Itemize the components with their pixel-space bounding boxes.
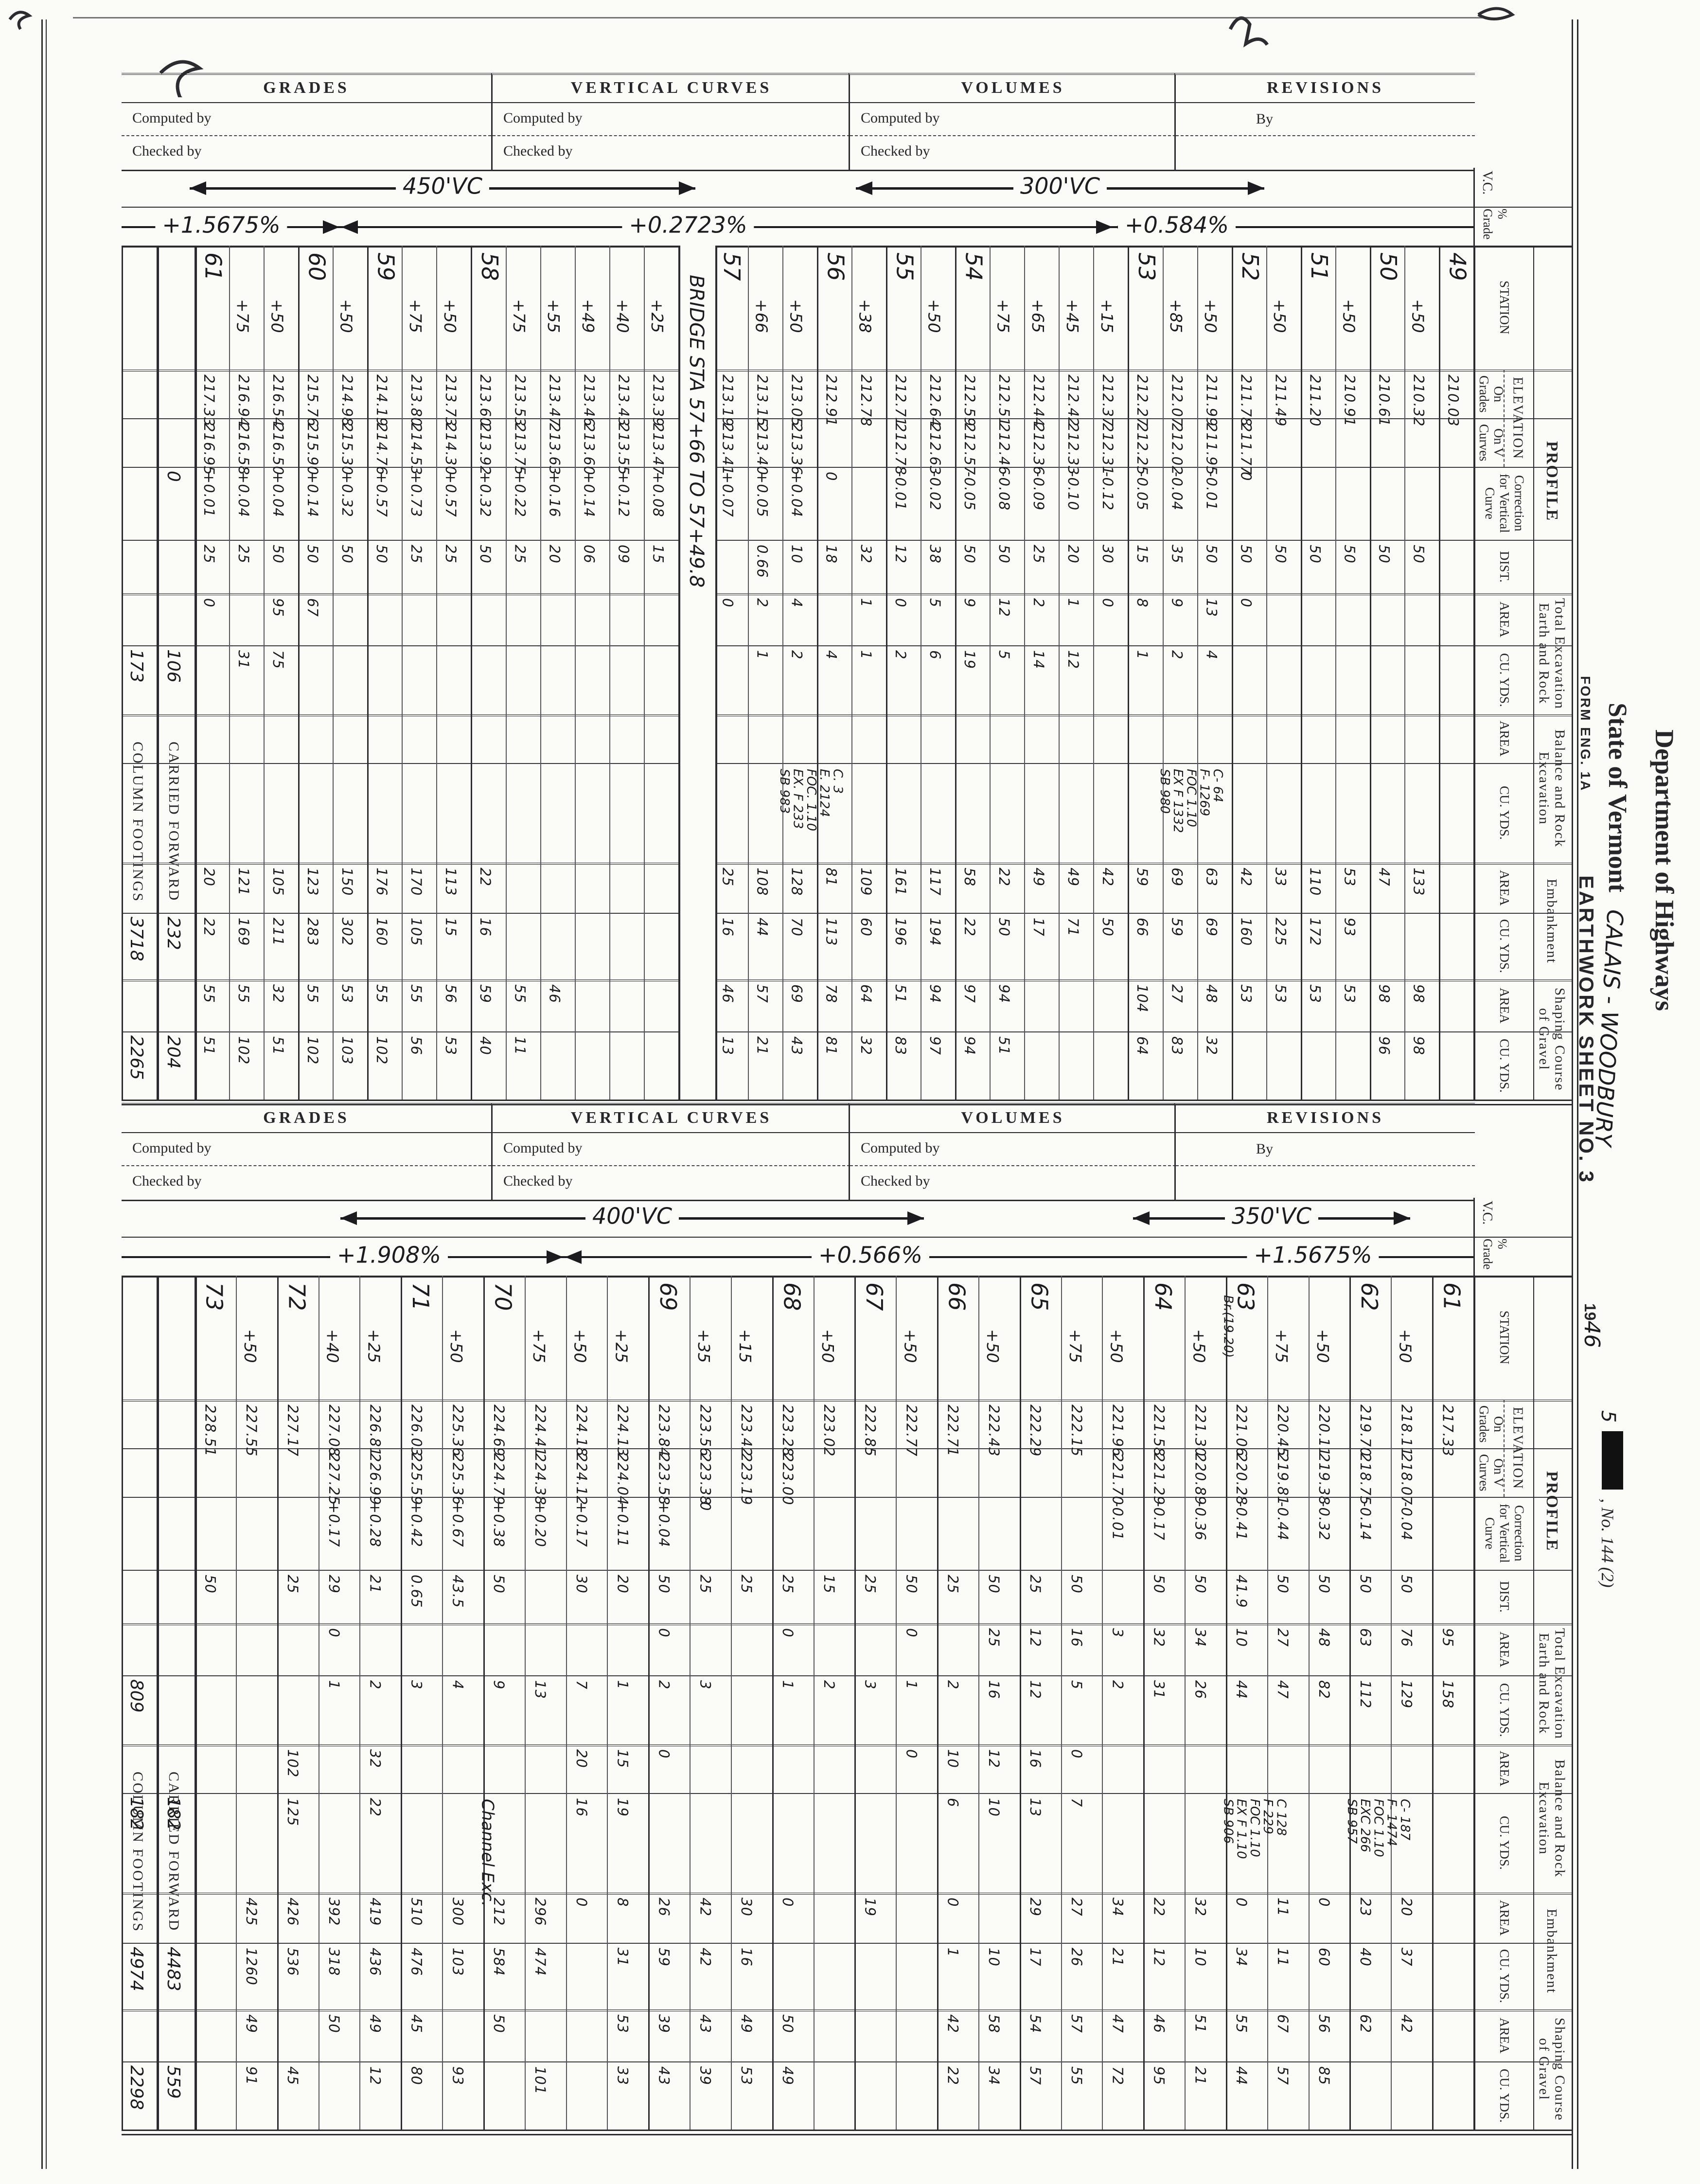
section-mid-rule (1176, 1165, 1475, 1166)
cell-top-sh_cy-17: 81 (823, 1036, 840, 1055)
cell-bottom-bal_cy-10: 19 (615, 1798, 631, 1817)
cell-bottom-te_area-11: 0 (655, 1628, 672, 1637)
cell-top-te_cy-16: 2 (789, 650, 805, 659)
section-title: GRADES (122, 1109, 491, 1127)
section-title-rule (1176, 102, 1475, 103)
cell-bottom-sh_cy-1: 91 (243, 2066, 260, 2085)
section-title: GRADES (122, 79, 491, 97)
cell-bottom-corr-5: +0.42 (408, 1502, 425, 1547)
cell-top-corr-24: -0.10 (1065, 472, 1081, 511)
total-carried-emb_cy-top: 232 (163, 917, 183, 950)
cell-bottom-te_area-28: 63 (1357, 1628, 1374, 1647)
cell-bottom-emb_cy-24: 10 (1192, 1948, 1208, 1967)
sheet-year: 1946 (1579, 1303, 1604, 1348)
note-bottom-3: C- 187F- 1474FOC 1.10EXC 266SB 957 (1345, 1799, 1411, 1857)
cell-top-station-26: 53 (1133, 252, 1160, 281)
col-line-bottom-9 (566, 1276, 567, 2130)
cell-bottom-te_cy-3: 1 (326, 1680, 342, 1689)
cell-top-emb_cy-26: 66 (1134, 918, 1151, 937)
cell-bottom-corr-6: +0.67 (449, 1502, 466, 1547)
cell-bottom-bal_area-10: 15 (615, 1749, 631, 1768)
grade-meet-left-0 (341, 220, 358, 234)
cell-bottom-te_cy-19: 16 (986, 1680, 1002, 1699)
cell-top-on_grades-31: 211.20 (1307, 374, 1324, 417)
cell-top-sh_cy-27: 83 (1169, 1036, 1185, 1055)
grade-label-2: +0.584% (1118, 212, 1236, 238)
cell-bottom-te_cy-9: 7 (573, 1680, 590, 1689)
bottom-vc-arrow-1-head-left (1133, 1211, 1150, 1225)
total-footings-bal_cy-bottom: 182 (126, 1797, 146, 1830)
cell-bottom-emb_area-13: 30 (738, 1898, 755, 1917)
cell-top-te_area-24: 1 (1065, 598, 1081, 607)
cell-top-dist-19: 12 (892, 545, 909, 564)
cell-bottom-te_cy-22: 2 (1110, 1680, 1126, 1689)
cell-top-emb_area-21: 58 (961, 868, 978, 887)
cell-top-emb_cy-15: 44 (754, 918, 771, 937)
grade-row-divider (1473, 207, 1475, 246)
cell-top-sh_cy-5: 102 (373, 1036, 390, 1065)
cell-top-corr-28: -0.01 (1203, 472, 1220, 511)
cell-top-te_area-27: 9 (1169, 598, 1185, 607)
computed-by-label: Computed by (861, 1140, 940, 1156)
cell-top-on_grades-9: 213.53 (512, 374, 528, 417)
cell-top-corr-15: +0.05 (754, 472, 771, 517)
cell-bottom-on_grades-9: 224.18 (573, 1404, 590, 1447)
computed-by-label: Computed by (132, 1140, 212, 1156)
cell-bottom-station-7: 70 (490, 1282, 516, 1311)
cell-bottom-corr-26: -0.44 (1275, 1502, 1291, 1541)
col-line-bottom-23 (1143, 1276, 1145, 2130)
total-footings-sh_cy-top: 2265 (126, 1035, 146, 1080)
cell-top-sh_area-3: 55 (304, 984, 321, 1003)
total-carried-te_cy-top: 106 (163, 649, 183, 683)
cell-bottom-on_v-6: 225.36 (449, 1453, 466, 1496)
grade-label-1: +0.566% (812, 1242, 929, 1268)
cell-top-emb_area-6: 170 (408, 868, 425, 896)
cell-top-sh_cy-26: 64 (1134, 1036, 1151, 1055)
group-label-profile-bottom: PROFILE (1535, 1400, 1569, 1623)
cell-top-emb_area-16: 128 (789, 868, 805, 896)
group-label-balance-bottom: Balance and Rock Excavation (1535, 1744, 1569, 1893)
cell-bottom-emb_cy-13: 16 (738, 1948, 755, 1967)
cell-bottom-dist-18: 25 (944, 1575, 961, 1594)
band-te_area-top (122, 593, 1572, 647)
col-line-top-12 (609, 246, 610, 1100)
cell-bottom-emb_area-26: 11 (1275, 1898, 1291, 1917)
cell-bottom-on_grades-15: 223.02 (821, 1404, 837, 1447)
section-title: VOLUMES (850, 79, 1176, 97)
cell-bottom-station-27: +50 (1313, 1329, 1332, 1363)
cell-top-on_grades-13: 213.39 (650, 374, 667, 417)
cell-top-station-33: 50 (1375, 252, 1401, 281)
cell-top-on_v-13: 213.47 (650, 423, 667, 466)
col-line-top-0 (195, 246, 196, 1100)
cell-top-station-7: +50 (441, 299, 460, 333)
cell-bottom-on_grades-0: 228.51 (202, 1404, 218, 1447)
total-footings-sh_cy-bottom: 2298 (126, 2065, 146, 2110)
cell-bottom-emb_cy-23: 12 (1151, 1948, 1168, 1967)
cell-bottom-on_v-7: 224.79 (491, 1453, 507, 1496)
cell-top-sh_area-22: 94 (996, 984, 1012, 1003)
row-label-vc: V.C. (1479, 1201, 1495, 1225)
cell-bottom-dist-25: 41.9 (1233, 1575, 1250, 1608)
cell-top-station-21: 54 (961, 252, 987, 281)
cell-top-emb_cy-25: 50 (1099, 918, 1116, 937)
cell-top-corr-6: +0.73 (408, 472, 425, 517)
cell-bottom-te_cy-30: 158 (1439, 1680, 1456, 1708)
col-line-bottom-22 (1102, 1276, 1103, 2130)
top-vc-arrow-1-head-left (856, 181, 872, 195)
col-line-bottom-27 (1309, 1276, 1310, 2130)
cell-bottom-sh_area-27: 56 (1316, 2014, 1332, 2033)
cell-bottom-bal_cy-21: 7 (1068, 1798, 1085, 1807)
cell-bottom-emb_area-10: 8 (615, 1898, 631, 1907)
cell-top-station-23: +65 (1028, 299, 1047, 333)
cell-top-emb_area-34: 133 (1411, 868, 1427, 896)
cell-bottom-emb_cy-1: 1260 (243, 1948, 260, 1986)
cell-bottom-on_v-12: 223.38 (697, 1453, 713, 1496)
cell-bottom-sh_area-13: 49 (738, 2014, 755, 2033)
cell-top-emb_area-30: 33 (1272, 868, 1289, 887)
group-label-total_exc-top: Total Excavation Earth and Rock (1535, 593, 1569, 714)
row-label-bal_cy-top: CU. YDS. (1477, 763, 1532, 863)
cell-bottom-corr-24: -0.36 (1192, 1502, 1208, 1541)
cell-top-dist-34: 50 (1411, 545, 1427, 564)
cell-top-dist-4: 50 (339, 545, 355, 564)
cell-top-emb_area-2: 105 (270, 868, 286, 896)
section-mid-rule (1176, 135, 1475, 136)
cell-bottom-emb_cy-26: 11 (1275, 1948, 1291, 1967)
cell-bottom-corr-10: +0.11 (615, 1502, 631, 1547)
cell-bottom-on_v-10: 224.04 (615, 1453, 631, 1496)
cell-top-station-24: +45 (1063, 299, 1082, 333)
cell-bottom-te_cy-28: 112 (1357, 1680, 1374, 1708)
row-label-on_v-top: On V Curves (1477, 418, 1505, 467)
cell-top-emb_area-31: 110 (1307, 868, 1324, 896)
cell-top-te_cy-21: 19 (961, 650, 978, 669)
cell-top-corr-13: +0.08 (650, 472, 667, 517)
cell-bottom-te_area-22: 3 (1110, 1628, 1126, 1637)
cell-top-corr-0: +0.01 (201, 472, 217, 517)
cell-top-sh_cy-33: 96 (1376, 1036, 1393, 1055)
group-label-total_exc-bottom: Total Excavation Earth and Rock (1535, 1623, 1569, 1744)
cell-top-emb_cy-17: 113 (823, 918, 840, 946)
cell-top-emb_area-33: 47 (1376, 868, 1393, 887)
cell-bottom-emb_area-23: 22 (1151, 1898, 1168, 1917)
cell-top-on_grades-29: 211.78 (1238, 374, 1254, 417)
cell-bottom-emb_area-8: 296 (532, 1898, 549, 1926)
cell-bottom-emb_cy-28: 40 (1357, 1948, 1374, 1967)
cell-top-corr-27: -0.04 (1169, 472, 1185, 511)
cell-top-te_area-25: 0 (1099, 598, 1116, 607)
cell-bottom-dist-27: 50 (1316, 1575, 1332, 1594)
col-line-top-32 (1335, 246, 1336, 1100)
cell-bottom-sh_area-7: 50 (491, 2014, 507, 2033)
cell-bottom-on_grades-13: 223.42 (738, 1404, 755, 1447)
cell-top-dist-2: 50 (270, 545, 286, 564)
cell-top-te_area-16: 4 (789, 598, 805, 607)
cell-bottom-sh_cy-22: 72 (1110, 2066, 1126, 2085)
checked-by-label: Checked by (861, 143, 930, 160)
cell-bottom-sh_cy-14: 49 (779, 2066, 796, 2085)
note-top-1: C- 64F- 1269FOC 1.10EX F 1332SB 980 (1158, 769, 1224, 833)
cell-top-emb_cy-16: 70 (789, 918, 805, 937)
cell-top-emb_cy-31: 172 (1307, 918, 1324, 946)
cell-top-sh_area-10: 46 (546, 984, 563, 1003)
cell-bottom-sh_cy-8: 101 (532, 2066, 549, 2095)
band-sh_cy-bottom (122, 2061, 1572, 2131)
cell-top-sh_area-19: 51 (892, 984, 909, 1003)
cell-top-corr-11: +0.14 (581, 472, 597, 517)
col-line-bottom-20 (1020, 1276, 1021, 2130)
cell-top-on_grades-11: 213.46 (581, 374, 597, 417)
cell-bottom-bal_cy-4: 22 (367, 1798, 384, 1817)
cell-top-sh_cy-1: 102 (235, 1036, 252, 1065)
grade-annotation-row-top: +1.5675%+0.2723%+0.584%% Grade (122, 207, 1572, 247)
top-vc-arrow-0-head-right (679, 181, 695, 195)
col-line-top-35 (1439, 246, 1440, 1100)
cell-bottom-dist-11: 50 (655, 1575, 672, 1594)
left-label-carried-top: CARRIED FORWARD (165, 742, 182, 902)
cell-top-on_v-27: 212.02 (1169, 423, 1185, 466)
cell-bottom-sh_area-18: 42 (944, 2014, 961, 2033)
cell-bottom-station-30: 61 (1439, 1282, 1465, 1311)
row-label-bal_cy-bottom: CU. YDS. (1477, 1793, 1532, 1893)
cell-top-on_v-28: 211.95 (1203, 423, 1220, 466)
grade-meet-right-0 (547, 1250, 563, 1264)
cell-bottom-dist-28: 50 (1357, 1575, 1374, 1594)
col-line-top-34 (1404, 246, 1405, 1100)
cell-bottom-dist-21: 50 (1068, 1575, 1085, 1594)
col-line-bottom-30 (1432, 1276, 1434, 2130)
cell-top-emb_area-4: 150 (339, 868, 355, 896)
cell-bottom-on_grades-4: 226.81 (367, 1404, 384, 1447)
total-footings-te_cy-top: 173 (126, 649, 146, 683)
cell-top-on_v-6: 214.53 (408, 423, 425, 466)
cell-bottom-on_grades-27: 220.11 (1316, 1404, 1332, 1447)
cell-top-dist-17: 18 (823, 545, 840, 564)
cell-top-emb_cy-2: 211 (270, 918, 286, 946)
cell-bottom-corr-29: -0.04 (1399, 1502, 1415, 1541)
cell-bottom-sh_cy-5: 80 (408, 2066, 425, 2085)
cell-top-dist-31: 50 (1307, 545, 1324, 564)
cell-bottom-on_grades-5: 226.03 (408, 1404, 425, 1447)
cell-top-corr-20: -0.02 (927, 472, 943, 511)
cell-top-te_cy-28: 4 (1203, 650, 1220, 659)
grade-label-0: +1.908% (330, 1242, 448, 1268)
cell-top-emb_cy-20: 194 (927, 918, 943, 946)
row-label-on_grades-top: On Grades (1477, 370, 1505, 418)
cell-bottom-bal_area-4: 32 (367, 1749, 384, 1768)
cell-top-station-6: +75 (406, 299, 425, 333)
cell-top-on_grades-35: 210.03 (1445, 374, 1462, 417)
cell-bottom-on_v-11: 223.58 (655, 1453, 672, 1496)
cell-bottom-te_area-25: 10 (1233, 1628, 1250, 1647)
agency-dept: Department of Highways (1649, 729, 1680, 1011)
grade-label-2: +1.5675% (1247, 1242, 1379, 1268)
cell-top-corr-25: -0.12 (1099, 472, 1116, 511)
cell-top-emb_area-5: 176 (373, 868, 390, 896)
cell-top-te_area-2: 95 (270, 598, 286, 617)
cell-bottom-emb_cy-5: 476 (408, 1948, 425, 1976)
cell-bottom-emb_area-20: 29 (1027, 1898, 1044, 1917)
cell-bottom-emb_area-5: 510 (408, 1898, 425, 1926)
cell-bottom-station-13: +15 (736, 1329, 755, 1363)
cell-top-dist-33: 50 (1376, 545, 1393, 564)
cell-top-on_v-8: 213.92 (477, 423, 494, 466)
cell-bottom-emb_cy-18: 1 (944, 1948, 961, 1957)
cell-top-sh_area-0: 55 (201, 984, 217, 1003)
header-section-grades-bottom: GRADESComputed byChecked by (122, 1103, 491, 1201)
col-line-bottom-0 (195, 1276, 196, 2130)
cell-bottom-te_cy-12: 3 (697, 1680, 713, 1689)
cell-top-emb_area-20: 117 (927, 868, 943, 896)
cell-top-dist-11: 06 (581, 545, 597, 564)
col-line-top-31 (1301, 246, 1302, 1100)
by-label: By (1256, 111, 1273, 127)
cell-top-corr-7: +0.57 (443, 472, 459, 517)
section-title-rule (122, 102, 491, 103)
computed-by-label: Computed by (503, 1140, 583, 1156)
cell-top-emb_area-15: 108 (754, 868, 771, 896)
cell-bottom-on_grades-1: 227.55 (243, 1404, 260, 1447)
cell-top-sh_area-6: 55 (408, 984, 425, 1003)
cell-top-station-8: 58 (477, 252, 503, 281)
cell-bottom-sh_area-25: 55 (1233, 2014, 1250, 2033)
cell-top-on_grades-0: 217.33 (201, 374, 217, 417)
row-label-dist-bottom: DIST. (1477, 1570, 1532, 1623)
cell-top-station-35: 49 (1444, 252, 1470, 281)
cell-top-station-14: 57 (719, 252, 745, 281)
total-carried-sh_cy-bottom: 559 (163, 2065, 183, 2099)
cell-top-te_cy-24: 12 (1065, 650, 1081, 669)
cell-top-on_grades-23: 212.44 (1030, 374, 1047, 417)
elevation-divider-bottom (1504, 1400, 1505, 1497)
cell-bottom-on_grades-21: 222.15 (1068, 1404, 1085, 1447)
cell-top-emb_area-18: 109 (858, 868, 874, 896)
col-line-bottom-21 (1061, 1276, 1062, 2130)
bottom-vc-arrow-0-head-left (340, 1211, 357, 1225)
cell-top-station-20: +50 (925, 299, 944, 333)
col-line-bottom-10 (607, 1276, 608, 2130)
total-carried-corr-top: 0 (163, 471, 183, 482)
row-label-elevation-bottom: ELEVATION (1505, 1400, 1530, 1497)
cell-bottom-te_cy-7: 9 (491, 1680, 507, 1689)
cell-bottom-on_grades-22: 221.96 (1110, 1404, 1126, 1447)
cell-top-on_grades-25: 212.37 (1099, 374, 1116, 417)
cell-top-on_v-25: 212.31 (1099, 423, 1116, 466)
cell-bottom-on_grades-29: 218.11 (1399, 1404, 1415, 1447)
cell-top-station-4: +50 (337, 299, 356, 333)
cell-bottom-emb_cy-29: 37 (1399, 1948, 1415, 1967)
header-section-vertical-curves-bottom: VERTICAL CURVESComputed byChecked by (491, 1103, 850, 1201)
cell-top-corr-21: -0.05 (961, 472, 978, 511)
bottom-vc-arrow-1-head-right (1394, 1211, 1410, 1225)
cell-bottom-emb_cy-6: 103 (449, 1948, 466, 1976)
cell-bottom-sh_cy-4: 12 (367, 2066, 384, 2085)
cell-top-te_cy-27: 2 (1169, 650, 1185, 659)
cell-top-te_area-26: 8 (1134, 598, 1151, 607)
cell-bottom-te_cy-8: 13 (532, 1680, 549, 1699)
grade-meet-right-0 (323, 220, 339, 234)
cell-bottom-sh_cy-6: 93 (449, 2066, 466, 2085)
cell-bottom-bal_cy-20: 13 (1027, 1798, 1044, 1817)
cell-top-corr-17: 0 (823, 472, 840, 481)
cell-top-emb_cy-3: 283 (304, 918, 321, 946)
cell-bottom-bal_cy-2: 125 (284, 1798, 301, 1826)
cell-bottom-te_cy-23: 31 (1151, 1680, 1168, 1699)
col-line-top-22 (990, 246, 991, 1100)
cell-top-sh_cy-21: 94 (961, 1036, 978, 1055)
row-label-bal_area-top: AREA (1477, 714, 1532, 763)
cell-bottom-on_v-28: 218.75 (1357, 1453, 1374, 1496)
cell-bottom-bal_area-20: 16 (1027, 1749, 1044, 1768)
cell-bottom-sh_cy-13: 53 (738, 2066, 755, 2085)
cell-top-emb_cy-6: 105 (408, 918, 425, 946)
cell-bottom-station-15: +50 (818, 1329, 837, 1363)
cell-bottom-emb_cy-27: 60 (1316, 1948, 1332, 1967)
cell-bottom-station-21: +75 (1066, 1329, 1085, 1363)
cell-top-emb_cy-0: 22 (201, 918, 217, 937)
by-label: By (1256, 1141, 1273, 1157)
cell-top-on_grades-12: 213.43 (615, 374, 632, 417)
col-line-top-26 (1128, 246, 1129, 1100)
cell-top-station-13: +25 (648, 299, 667, 333)
cell-bottom-sh_cy-24: 21 (1192, 2066, 1208, 2085)
cell-bottom-corr-8: +0.20 (532, 1502, 549, 1547)
cell-bottom-te_cy-10: 1 (615, 1680, 631, 1689)
group-label-shaping-bottom: Shaping Course of Gravel (1535, 2009, 1569, 2130)
cell-bottom-emb_area-25: 0 (1233, 1898, 1250, 1907)
col-line-top-8 (471, 246, 472, 1100)
cell-top-emb_area-8: 22 (477, 868, 494, 887)
cell-bottom-corr-12: 0 (697, 1502, 713, 1511)
cell-top-corr-14: +0.07 (720, 472, 736, 517)
cell-top-on_v-20: 212.63 (927, 423, 943, 466)
cell-bottom-sh_cy-11: 43 (655, 2066, 672, 2085)
cell-top-on_v-12: 213.55 (615, 423, 632, 466)
cell-top-sh_area-27: 27 (1169, 984, 1185, 1003)
cell-bottom-corr-9: +0.17 (573, 1502, 590, 1547)
cell-bottom-emb_cy-8: 474 (532, 1948, 549, 1976)
cell-bottom-te_cy-17: 1 (903, 1680, 920, 1689)
cell-top-dist-25: 30 (1099, 545, 1116, 564)
cell-top-sh_area-34: 98 (1411, 984, 1427, 1003)
cell-bottom-corr-22: -0.01 (1110, 1502, 1126, 1541)
checked-by-label: Checked by (861, 1173, 930, 1190)
cell-top-station-3: 60 (304, 252, 330, 281)
cell-bottom-station-29: +50 (1396, 1329, 1415, 1363)
col-line-bottom-17 (896, 1276, 897, 2130)
cell-bottom-dist-9: 30 (573, 1575, 590, 1594)
cell-bottom-dist-4: 21 (367, 1575, 384, 1594)
cell-top-station-2: +50 (268, 299, 287, 333)
group-label-balance-top: Balance and Rock Excavation (1535, 714, 1569, 863)
group-label-embankment-top: Embankment (1535, 863, 1569, 979)
cell-top-on_grades-28: 211.99 (1203, 374, 1220, 417)
cell-top-on_v-22: 212.46 (996, 423, 1012, 466)
top-vc-arrow-1-head-right (1248, 181, 1264, 195)
cell-top-on_v-4: 215.30 (339, 423, 355, 466)
cell-bottom-emb_area-9: 0 (573, 1898, 590, 1907)
cell-bottom-te_area-17: 0 (903, 1628, 920, 1637)
cell-bottom-emb_cy-19: 10 (986, 1948, 1002, 1967)
project-number: 5, No. 144 (2) (1597, 1410, 1623, 1587)
cell-bottom-bal_area-11: 0 (655, 1749, 672, 1758)
cell-bottom-on_v-4: 226.99 (367, 1453, 384, 1496)
cell-top-dist-30: 50 (1272, 545, 1289, 564)
cell-top-sh_cy-18: 32 (858, 1036, 874, 1055)
